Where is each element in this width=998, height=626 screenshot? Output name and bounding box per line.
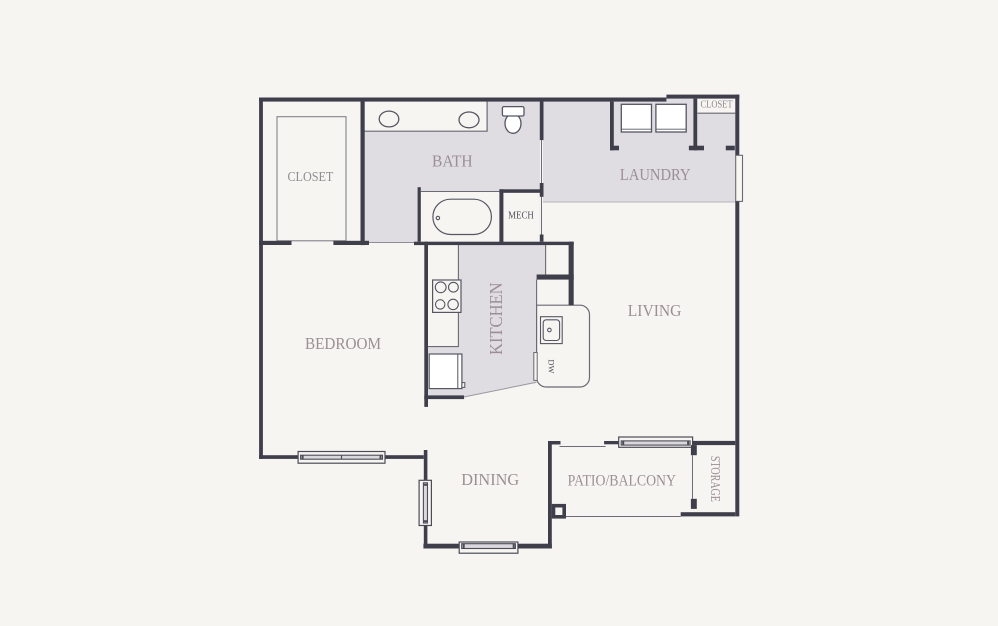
svg-text:PATIO/BALCONY: PATIO/BALCONY <box>568 472 677 489</box>
svg-text:STORAGE: STORAGE <box>707 456 722 502</box>
svg-text:DW: DW <box>547 359 557 373</box>
svg-text:BEDROOM: BEDROOM <box>305 334 381 353</box>
svg-text:KITCHEN: KITCHEN <box>486 282 506 355</box>
svg-text:CLOSET: CLOSET <box>701 99 733 110</box>
svg-text:LIVING: LIVING <box>628 301 682 320</box>
svg-text:LAUNDRY: LAUNDRY <box>620 165 691 184</box>
svg-text:DINING: DINING <box>461 470 519 489</box>
svg-text:MECH: MECH <box>508 210 534 221</box>
svg-text:BATH: BATH <box>432 151 473 170</box>
svg-text:CLOSET: CLOSET <box>287 169 334 184</box>
